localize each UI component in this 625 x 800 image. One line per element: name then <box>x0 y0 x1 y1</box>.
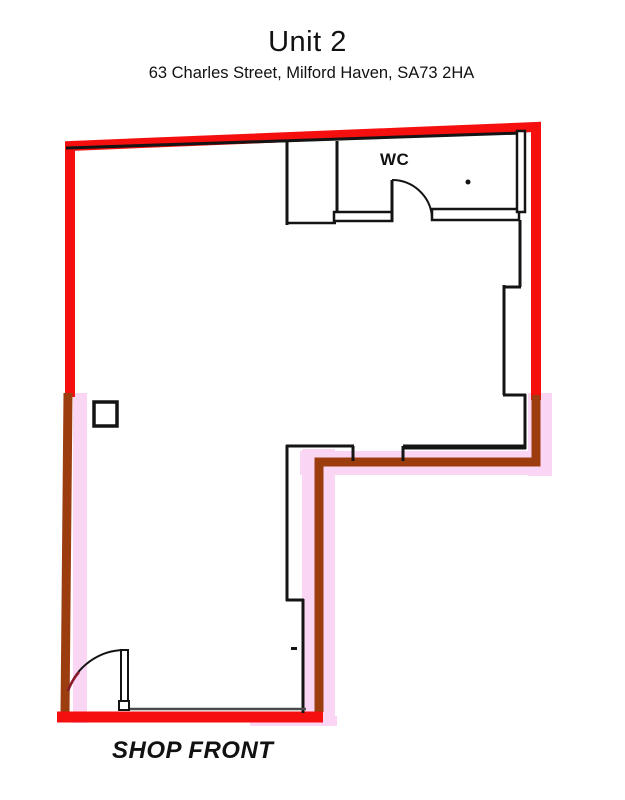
plan-dash-mark <box>291 647 297 650</box>
wall-wc-sill-left <box>334 212 392 221</box>
demise-boundary-red <box>70 127 536 400</box>
pink-demise-highlight <box>73 393 552 726</box>
wall-wc-sill-right <box>432 209 519 220</box>
floor-plan-page: Unit 2 63 Charles Street, Milford Haven,… <box>0 0 625 800</box>
plan-dot-mark <box>466 180 471 185</box>
column-square <box>94 402 117 426</box>
entrance-door-hinge <box>119 701 129 710</box>
wall-right-double <box>517 131 525 212</box>
demise-boundary-brown-right <box>319 395 536 712</box>
shop-front-label: SHOP FRONT <box>112 737 273 765</box>
interior-walls <box>66 131 526 713</box>
entrance-door-leaf <box>121 650 128 708</box>
wc-door <box>392 180 432 222</box>
pink-left-band <box>73 393 87 723</box>
demise-boundary-brown-left <box>65 393 68 714</box>
floor-plan <box>0 0 625 800</box>
wc-door-swing-arc <box>392 180 432 217</box>
wc-label: WC <box>380 150 409 170</box>
